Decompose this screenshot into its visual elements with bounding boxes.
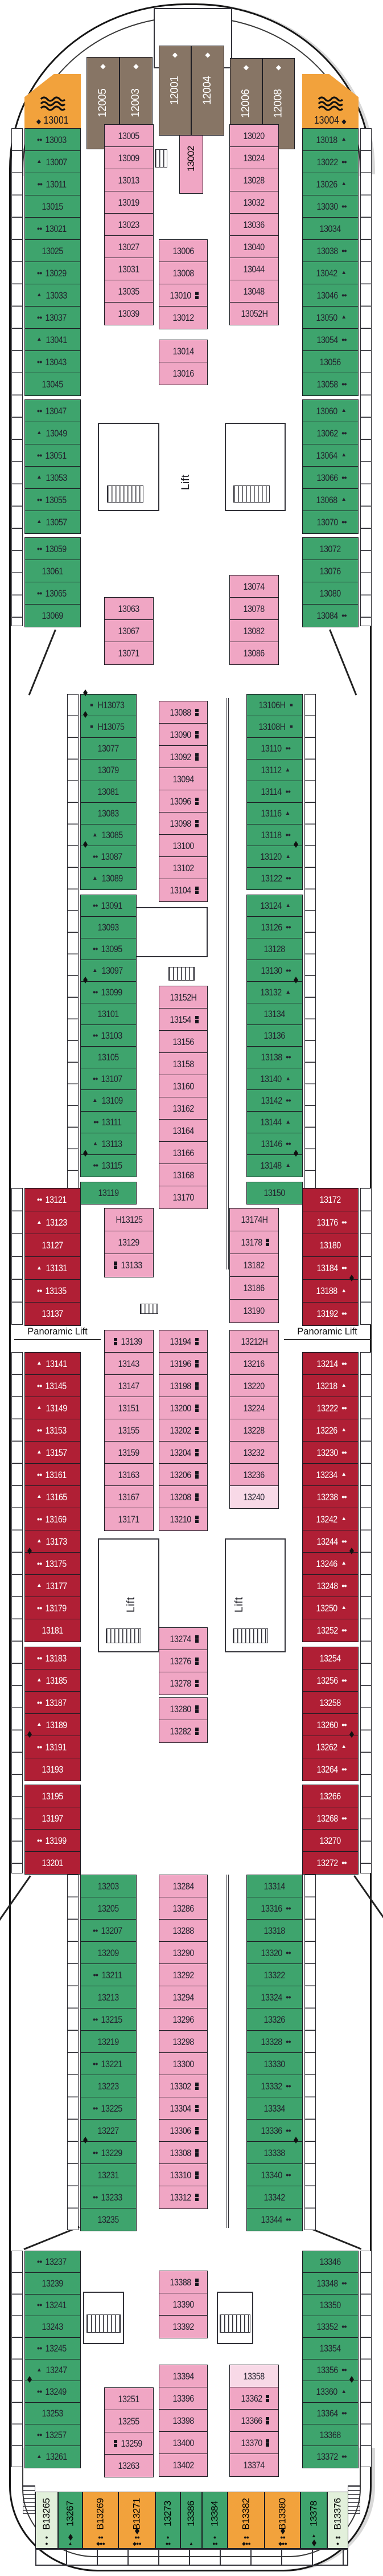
cabin-13012[interactable]: 13012 [159,306,208,329]
cabin-13282[interactable]: 13282 [159,1720,208,1743]
cabin-13013[interactable]: 13013 [104,169,154,192]
cabin-13215[interactable]: ●●13215 [80,2008,137,2031]
cabin-13188[interactable]: 13188▲ [302,1279,359,1303]
cabin-13240[interactable]: 13240 [229,1485,279,1509]
cabin-13007[interactable]: ▲13007 [24,150,81,174]
cabin-13037[interactable]: ●●13037 [24,306,81,329]
cabin-13374[interactable]: 13374 [229,2453,279,2477]
cabin-13171[interactable]: 13171 [104,1508,154,1531]
cabin-13278[interactable]: 13278 [159,1672,208,1695]
cabin-13247[interactable]: ▲13247 [24,2359,81,2382]
cabin-13249[interactable]: ●●13249 [24,2381,81,2403]
cabin-13300[interactable]: 13300 [159,2052,208,2076]
cabin-13172[interactable]: 13172 [302,1188,359,1212]
cabin-13267[interactable]: 13267▲ [58,2492,83,2549]
cabin-13140[interactable]: 13140▲ [246,1068,303,1091]
cabin-13390[interactable]: 13390 [159,2293,208,2316]
cabin-13266[interactable]: 13266 [302,1785,359,1808]
cabin-13386[interactable]: 13386▲ [180,2492,202,2549]
cabin-13174H[interactable]: 13174H [229,1208,279,1232]
cabin-13185[interactable]: ▲13185 [24,1669,81,1692]
cabin-13113[interactable]: ▲13113 [80,1133,137,1156]
cabin-13046[interactable]: 13046●● [302,284,359,307]
cabin-13334[interactable]: 13334 [246,2097,303,2120]
cabin-13074[interactable]: 13074 [229,575,279,598]
cabin-13269[interactable]: B13269●●◆●● [83,2492,118,2549]
cabin-13127[interactable]: 13127 [24,1234,81,1258]
cabin-13265[interactable]: B13265●● [35,2492,58,2549]
cabin-13066[interactable]: 13066●● [302,466,359,489]
cabin-13158[interactable]: 13158 [159,1052,208,1076]
cabin-13108H[interactable]: 13108H■ [246,716,303,738]
cabin-13232[interactable]: 13232 [229,1441,279,1464]
cabin-13396[interactable]: 13396 [159,2387,208,2410]
cabin-13167[interactable]: 13167 [104,1485,154,1509]
cabin-13236[interactable]: 13236 [229,1463,279,1487]
cabin-13160[interactable]: 13160 [159,1075,208,1098]
cabin-13115[interactable]: ●●13115 [80,1154,137,1177]
cabin-13161[interactable]: ●●13161 [24,1463,81,1487]
cabin-13101[interactable]: 13101 [80,1003,137,1026]
cabin-13206[interactable]: 13206 [159,1463,208,1487]
cabin-13076[interactable]: 13076 [302,560,359,583]
cabin-13071[interactable]: 13071 [104,642,154,665]
cabin-13312[interactable]: 13312 [159,2186,208,2209]
cabin-13131[interactable]: ▲13131 [24,1256,81,1280]
cabin-13111[interactable]: ●●13111 [80,1111,137,1134]
cabin-13070[interactable]: 13070●● [302,511,359,534]
cabin-13038[interactable]: 13038●● [302,239,359,263]
cabin-13272[interactable]: 13272●● [302,1851,359,1875]
cabin-13021[interactable]: ●●13021 [24,217,81,240]
cabin-13186[interactable]: 13186 [229,1276,279,1300]
cabin-13069[interactable]: 13069 [24,604,81,627]
cabin-13242[interactable]: 13242▲ [302,1508,359,1531]
cabin-13352[interactable]: 13352●● [302,2316,359,2338]
cabin-13231[interactable]: 13231 [80,2163,137,2187]
cabin-13368[interactable]: 13368 [302,2424,359,2447]
cabin-13203[interactable]: 13203 [80,1875,137,1898]
cabin-13189[interactable]: ▲13189 [24,1713,81,1737]
cabin-13116[interactable]: 13116▲ [246,802,303,825]
cabin-13092[interactable]: 13092 [159,745,208,769]
cabin-13051[interactable]: ●●13051 [24,444,81,467]
cabin-13015[interactable]: 13015 [24,195,81,218]
cabin-13324[interactable]: 13324●● [246,1986,303,2009]
cabin-13205[interactable]: 13205 [80,1897,137,1920]
cabin-13256[interactable]: 13256●● [302,1669,359,1692]
cabin-13233[interactable]: ●●13233 [80,2186,137,2209]
cabin-13153[interactable]: ●●13153 [24,1419,81,1442]
cabin-13316[interactable]: 13316●● [246,1897,303,1920]
cabin-13201[interactable]: 13201 [24,1851,81,1875]
cabin-13241[interactable]: ●●13241 [24,2294,81,2317]
cabin-13288[interactable]: 13288 [159,1919,208,1942]
cabin-13049[interactable]: ▲13049 [24,422,81,445]
cabin-13234[interactable]: 13234▲ [302,1463,359,1487]
cabin-H13075[interactable]: ■H13075 [80,716,137,738]
cabin-13010[interactable]: 13010 [159,284,208,307]
cabin-13052H[interactable]: 13052H [229,302,279,325]
cabin-13141[interactable]: ▲13141 [24,1352,81,1375]
cabin-13087[interactable]: ●●13087 [80,846,137,868]
cabin-13276[interactable]: 13276 [159,1650,208,1673]
cabin-13210[interactable]: 13210 [159,1508,208,1531]
cabin-13258[interactable]: 13258 [302,1691,359,1714]
cabin-13143[interactable]: 13143 [104,1352,154,1375]
cabin-13320[interactable]: 13320●● [246,1941,303,1965]
cabin-13027[interactable]: 13027 [104,235,154,259]
cabin-13102[interactable]: 13102 [159,856,208,880]
cabin-13134[interactable]: 13134 [246,1003,303,1026]
cabin-13080[interactable]: 13080 [302,582,359,605]
cabin-13262[interactable]: 13262▲ [302,1736,359,1759]
cabin-13346[interactable]: 13346 [302,2251,359,2273]
cabin-13176[interactable]: 13176●● [302,1211,359,1235]
cabin-13191[interactable]: ●●13191 [24,1736,81,1759]
cabin-13328[interactable]: 13328●● [246,2030,303,2054]
cabin-13330[interactable]: 13330 [246,2052,303,2076]
cabin-13022[interactable]: 13022●● [302,150,359,174]
cabin-13152H[interactable]: 13152H [159,986,208,1009]
cabin-12001[interactable]: ◆12001 [159,46,191,136]
cabin-13376[interactable]: B13376●●● [327,2492,348,2549]
cabin-13104[interactable]: 13104 [159,879,208,902]
cabin-13120[interactable]: 13120▲ [246,846,303,868]
cabin-13192[interactable]: 13192●● [302,1302,359,1326]
cabin-13169[interactable]: ●●13169 [24,1508,81,1531]
cabin-13034[interactable]: 13034 [302,217,359,240]
cabin-13237[interactable]: ●●13237 [24,2251,81,2273]
cabin-13193[interactable]: 13193 [24,1758,81,1781]
cabin-13047[interactable]: ●●13047 [24,399,81,423]
cabin-13372[interactable]: 13372●● [302,2446,359,2468]
cabin-13128[interactable]: 13128 [246,938,303,961]
cabin-13138[interactable]: 13138●● [246,1046,303,1069]
cabin-13380[interactable]: B13380●●◆●● [265,2492,300,2549]
cabin-13229[interactable]: ●●13229 [80,2141,137,2165]
cabin-13100[interactable]: 13100 [159,834,208,858]
cabin-13094[interactable]: 13094 [159,768,208,791]
cabin-13261[interactable]: ▲13261 [24,2446,81,2468]
cabin-13382[interactable]: B13382●●◆●● [228,2492,265,2549]
cabin-13166[interactable]: 13166 [159,1141,208,1165]
cabin-13173[interactable]: ▲13173 [24,1530,81,1553]
cabin-13263[interactable]: 13263 [104,2454,154,2477]
cabin-13308[interactable]: 13308 [159,2141,208,2165]
cabin-13388[interactable]: 13388 [159,2271,208,2294]
cabin-13362[interactable]: 13362 [229,2387,279,2410]
cabin-13006[interactable]: 13006 [159,239,208,263]
cabin-13139[interactable]: 13139 [104,1330,154,1353]
cabin-13175[interactable]: ●●13175 [24,1552,81,1575]
cabin-13033[interactable]: ▲13033 [24,284,81,307]
cabin-13183[interactable]: ●●13183 [24,1647,81,1670]
cabin-13109[interactable]: ▲13109 [80,1089,137,1112]
cabin-13093[interactable]: 13093 [80,916,137,939]
cabin-13354[interactable]: 13354 [302,2337,359,2360]
cabin-12004[interactable]: ◆12004 [191,46,224,136]
cabin-13043[interactable]: ●●13043 [24,350,81,374]
cabin-13190[interactable]: 13190 [229,1299,279,1323]
cabin-13112[interactable]: 13112▲ [246,759,303,782]
cabin-13067[interactable]: 13067 [104,619,154,643]
cabin-13009[interactable]: 13009 [104,146,154,170]
cabin-13041[interactable]: ▲13041 [24,328,81,352]
cabin-13114[interactable]: 13114●● [246,781,303,803]
cabin-13286[interactable]: 13286 [159,1897,208,1920]
cabin-13032[interactable]: 13032 [229,191,279,214]
cabin-13056[interactable]: 13056 [302,350,359,374]
cabin-13392[interactable]: 13392 [159,2315,208,2338]
cabin-13168[interactable]: 13168 [159,1164,208,1187]
cabin-H13125[interactable]: H13125 [104,1208,154,1232]
cabin-13257[interactable]: ●●13257 [24,2424,81,2447]
cabin-13159[interactable]: 13159 [104,1441,154,1464]
cabin-13220[interactable]: 13220 [229,1374,279,1398]
cabin-13045[interactable]: 13045 [24,373,81,396]
cabin-13274[interactable]: 13274 [159,1627,208,1651]
cabin-13031[interactable]: 13031 [104,258,154,281]
cabin-13228[interactable]: 13228 [229,1419,279,1442]
cabin-13085[interactable]: ▲13085 [80,824,137,847]
cabin-13284[interactable]: 13284 [159,1875,208,1898]
cabin-13053[interactable]: ▲13053 [24,466,81,489]
cabin-13208[interactable]: 13208 [159,1485,208,1509]
cabin-13129[interactable]: 13129 [104,1231,154,1255]
cabin-13110[interactable]: 13110●● [246,737,303,760]
cabin-13084[interactable]: 13084●● [302,604,359,627]
cabin-13028[interactable]: 13028 [229,169,279,192]
cabin-13099[interactable]: ●●13099 [80,981,137,1004]
cabin-13079[interactable]: 13079 [80,759,137,782]
cabin-13402[interactable]: 13402 [159,2453,208,2477]
cabin-13264[interactable]: 13264●● [302,1758,359,1781]
cabin-13302[interactable]: 13302 [159,2075,208,2098]
cabin-13360[interactable]: 13360▲ [302,2381,359,2403]
cabin-13048[interactable]: 13048 [229,280,279,303]
cabin-13318[interactable]: 13318 [246,1919,303,1942]
cabin-13003[interactable]: ●●13003 [24,128,81,152]
cabin-13035[interactable]: 13035 [104,280,154,303]
cabin-13103[interactable]: ●●13103 [80,1024,137,1047]
cabin-13209[interactable]: 13209 [80,1941,137,1965]
cabin-13091[interactable]: ●●13091 [80,895,137,917]
cabin-13344[interactable]: 13344●● [246,2208,303,2231]
cabin-13086[interactable]: 13086 [229,642,279,665]
cabin-13005[interactable]: 13005 [104,124,154,148]
cabin-13137[interactable]: 13137 [24,1302,81,1326]
cabin-13058[interactable]: 13058●● [302,373,359,396]
cabin-13065[interactable]: ●●13065 [24,582,81,605]
cabin-13055[interactable]: ●●13055 [24,488,81,512]
cabin-13364[interactable]: 13364●● [302,2402,359,2425]
cabin-13057[interactable]: ▲13057 [24,511,81,534]
cabin-13072[interactable]: 13072 [302,537,359,561]
cabin-13124[interactable]: 13124▲ [246,895,303,917]
cabin-13270[interactable]: 13270 [302,1829,359,1852]
cabin-13195[interactable]: 13195 [24,1785,81,1808]
cabin-13227[interactable]: 13227 [80,2119,137,2142]
cabin-13199[interactable]: ●●13199 [24,1829,81,1852]
cabin-13105[interactable]: 13105 [80,1046,137,1069]
cabin-13044[interactable]: 13044 [229,258,279,281]
cabin-13024[interactable]: 13024 [229,146,279,170]
cabin-13326[interactable]: 13326 [246,2008,303,2031]
cabin-13204[interactable]: 13204 [159,1441,208,1464]
cabin-13008[interactable]: 13008 [159,262,208,285]
cabin-13016[interactable]: 13016 [159,362,208,385]
cabin-13213[interactable]: 13213 [80,1986,137,2009]
cabin-13366[interactable]: 13366 [229,2409,279,2432]
cabin-13178[interactable]: 13178 [229,1231,279,1255]
cabin-13248[interactable]: 13248●● [302,1574,359,1598]
cabin-13064[interactable]: 13064▲ [302,444,359,467]
cabin-13235[interactable]: 13235 [80,2208,137,2231]
cabin-13250[interactable]: 13250▲ [302,1597,359,1620]
cabin-13119[interactable]: 13119 [80,1182,137,1205]
cabin-13358[interactable]: 13358 [229,2365,279,2388]
cabin-13221[interactable]: ●●13221 [80,2052,137,2076]
cabin-13050[interactable]: 13050▲ [302,306,359,329]
cabin-13097[interactable]: ▲13097 [80,960,137,982]
cabin-13107[interactable]: ●●13107 [80,1068,137,1091]
cabin-13348[interactable]: 13348●● [302,2272,359,2295]
cabin-13089[interactable]: ▲13089 [80,867,137,890]
cabin-13090[interactable]: 13090 [159,723,208,746]
cabin-13384[interactable]: 13384●●● [202,2492,228,2549]
cabin-13252[interactable]: 13252●● [302,1619,359,1642]
cabin-13164[interactable]: 13164 [159,1119,208,1142]
cabin-13082[interactable]: 13082 [229,619,279,643]
cabin-13400[interactable]: 13400 [159,2431,208,2455]
cabin-13001[interactable]: ◆ 13001 [24,74,81,129]
cabin-13350[interactable]: 13350 [302,2294,359,2317]
cabin-13202[interactable]: 13202 [159,1419,208,1442]
cabin-13083[interactable]: 13083 [80,802,137,825]
cabin-13060[interactable]: 13060▲ [302,399,359,423]
cabin-13338[interactable]: 13338 [246,2141,303,2165]
cabin-13238[interactable]: 13238●● [302,1485,359,1509]
cabin-13026[interactable]: 13026▲ [302,173,359,196]
cabin-13023[interactable]: 13023 [104,213,154,236]
cabin-13156[interactable]: 13156 [159,1030,208,1054]
cabin-13098[interactable]: 13098 [159,812,208,835]
cabin-13222[interactable]: 13222●● [302,1397,359,1420]
cabin-13036[interactable]: 13036 [229,213,279,236]
cabin-13165[interactable]: ▲13165 [24,1485,81,1509]
cabin-13078[interactable]: 13078 [229,597,279,620]
cabin-13332[interactable]: 13332●● [246,2075,303,2098]
cabin-13144[interactable]: 13144▲ [246,1111,303,1134]
cabin-13170[interactable]: 13170 [159,1186,208,1209]
cabin-13150[interactable]: 13150 [246,1182,303,1205]
cabin-13251[interactable]: 13251 [104,2387,154,2411]
cabin-13254[interactable]: 13254 [302,1647,359,1670]
cabin-13342[interactable]: 13342 [246,2186,303,2209]
cabin-13271[interactable]: B13271●●◆●● [118,2492,155,2549]
cabin-13062[interactable]: 13062●● [302,422,359,445]
cabin-13292[interactable]: 13292 [159,1963,208,1987]
cabin-13030[interactable]: 13030●● [302,195,359,218]
cabin-13019[interactable]: 13019 [104,191,154,214]
cabin-13182[interactable]: 13182 [229,1254,279,1277]
cabin-13142[interactable]: 13142●● [246,1089,303,1112]
cabin-13025[interactable]: 13025 [24,239,81,263]
cabin-13398[interactable]: 13398 [159,2409,208,2432]
cabin-13310[interactable]: 13310 [159,2163,208,2187]
cabin-13246[interactable]: 13246▲ [302,1552,359,1575]
cabin-13197[interactable]: 13197 [24,1807,81,1830]
cabin-13014[interactable]: 13014 [159,340,208,363]
cabin-13123[interactable]: ▲13123 [24,1211,81,1235]
cabin-13378[interactable]: 13378▲ [300,2492,327,2549]
cabin-13187[interactable]: ●●13187 [24,1691,81,1714]
cabin-13157[interactable]: ▲13157 [24,1441,81,1464]
cabin-13054[interactable]: 13054●● [302,328,359,352]
cabin-13029[interactable]: ●●13029 [24,262,81,285]
cabin-13149[interactable]: ▲13149 [24,1397,81,1420]
cabin-13088[interactable]: 13088 [159,701,208,724]
cabin-13216[interactable]: 13216 [229,1352,279,1375]
cabin-13059[interactable]: ●●13059 [24,537,81,561]
cabin-13223[interactable]: 13223 [80,2075,137,2098]
cabin-13177[interactable]: ▲13177 [24,1574,81,1598]
cabin-13077[interactable]: 13077 [80,737,137,760]
cabin-H13073[interactable]: ■H13073 [80,694,137,717]
cabin-13180[interactable]: 13180 [302,1234,359,1258]
cabin-13020[interactable]: 13020 [229,124,279,148]
cabin-13147[interactable]: 13147 [104,1374,154,1398]
cabin-13298[interactable]: 13298 [159,2030,208,2054]
cabin-13219[interactable]: 13219 [80,2030,137,2054]
cabin-13004[interactable]: 13004 ◆ [302,74,359,129]
cabin-13194[interactable]: 13194 [159,1330,208,1353]
cabin-13273[interactable]: 13273●●● [155,2492,180,2549]
cabin-13151[interactable]: 13151 [104,1397,154,1420]
cabin-13133[interactable]: 13133 [104,1254,154,1277]
cabin-13163[interactable]: 13163 [104,1463,154,1487]
cabin-13243[interactable]: 13243 [24,2316,81,2338]
cabin-13132[interactable]: 13132▲ [246,981,303,1004]
cabin-13063[interactable]: 13063 [104,597,154,620]
cabin-13340[interactable]: 13340●● [246,2163,303,2187]
cabin-13370[interactable]: 13370 [229,2431,279,2455]
cabin-13198[interactable]: 13198 [159,1374,208,1398]
cabin-13106H[interactable]: 13106H■ [246,694,303,717]
cabin-13212H[interactable]: 13212H [229,1330,279,1353]
cabin-13039[interactable]: 13039 [104,302,154,325]
cabin-13218[interactable]: 13218▲ [302,1374,359,1398]
cabin-13148[interactable]: 13148▲ [246,1154,303,1177]
cabin-13135[interactable]: ●●13135 [24,1279,81,1303]
cabin-13095[interactable]: ●●13095 [80,938,137,961]
cabin-13211[interactable]: ●●13211 [80,1963,137,1987]
cabin-13154[interactable]: 13154 [159,1008,208,1031]
cabin-13255[interactable]: 13255 [104,2410,154,2433]
cabin-13294[interactable]: 13294 [159,1986,208,2009]
cabin-13306[interactable]: 13306 [159,2119,208,2142]
cabin-13224[interactable]: 13224 [229,1397,279,1420]
cabin-13096[interactable]: 13096 [159,790,208,813]
cabin-13280[interactable]: 13280 [159,1697,208,1721]
cabin-13245[interactable]: ●●13245 [24,2337,81,2360]
cabin-13322[interactable]: 13322 [246,1963,303,1987]
cabin-13290[interactable]: 13290 [159,1941,208,1965]
cabin-13162[interactable]: 13162 [159,1097,208,1120]
cabin-13181[interactable]: 13181 [24,1619,81,1642]
cabin-13259[interactable]: 13259 [104,2432,154,2455]
